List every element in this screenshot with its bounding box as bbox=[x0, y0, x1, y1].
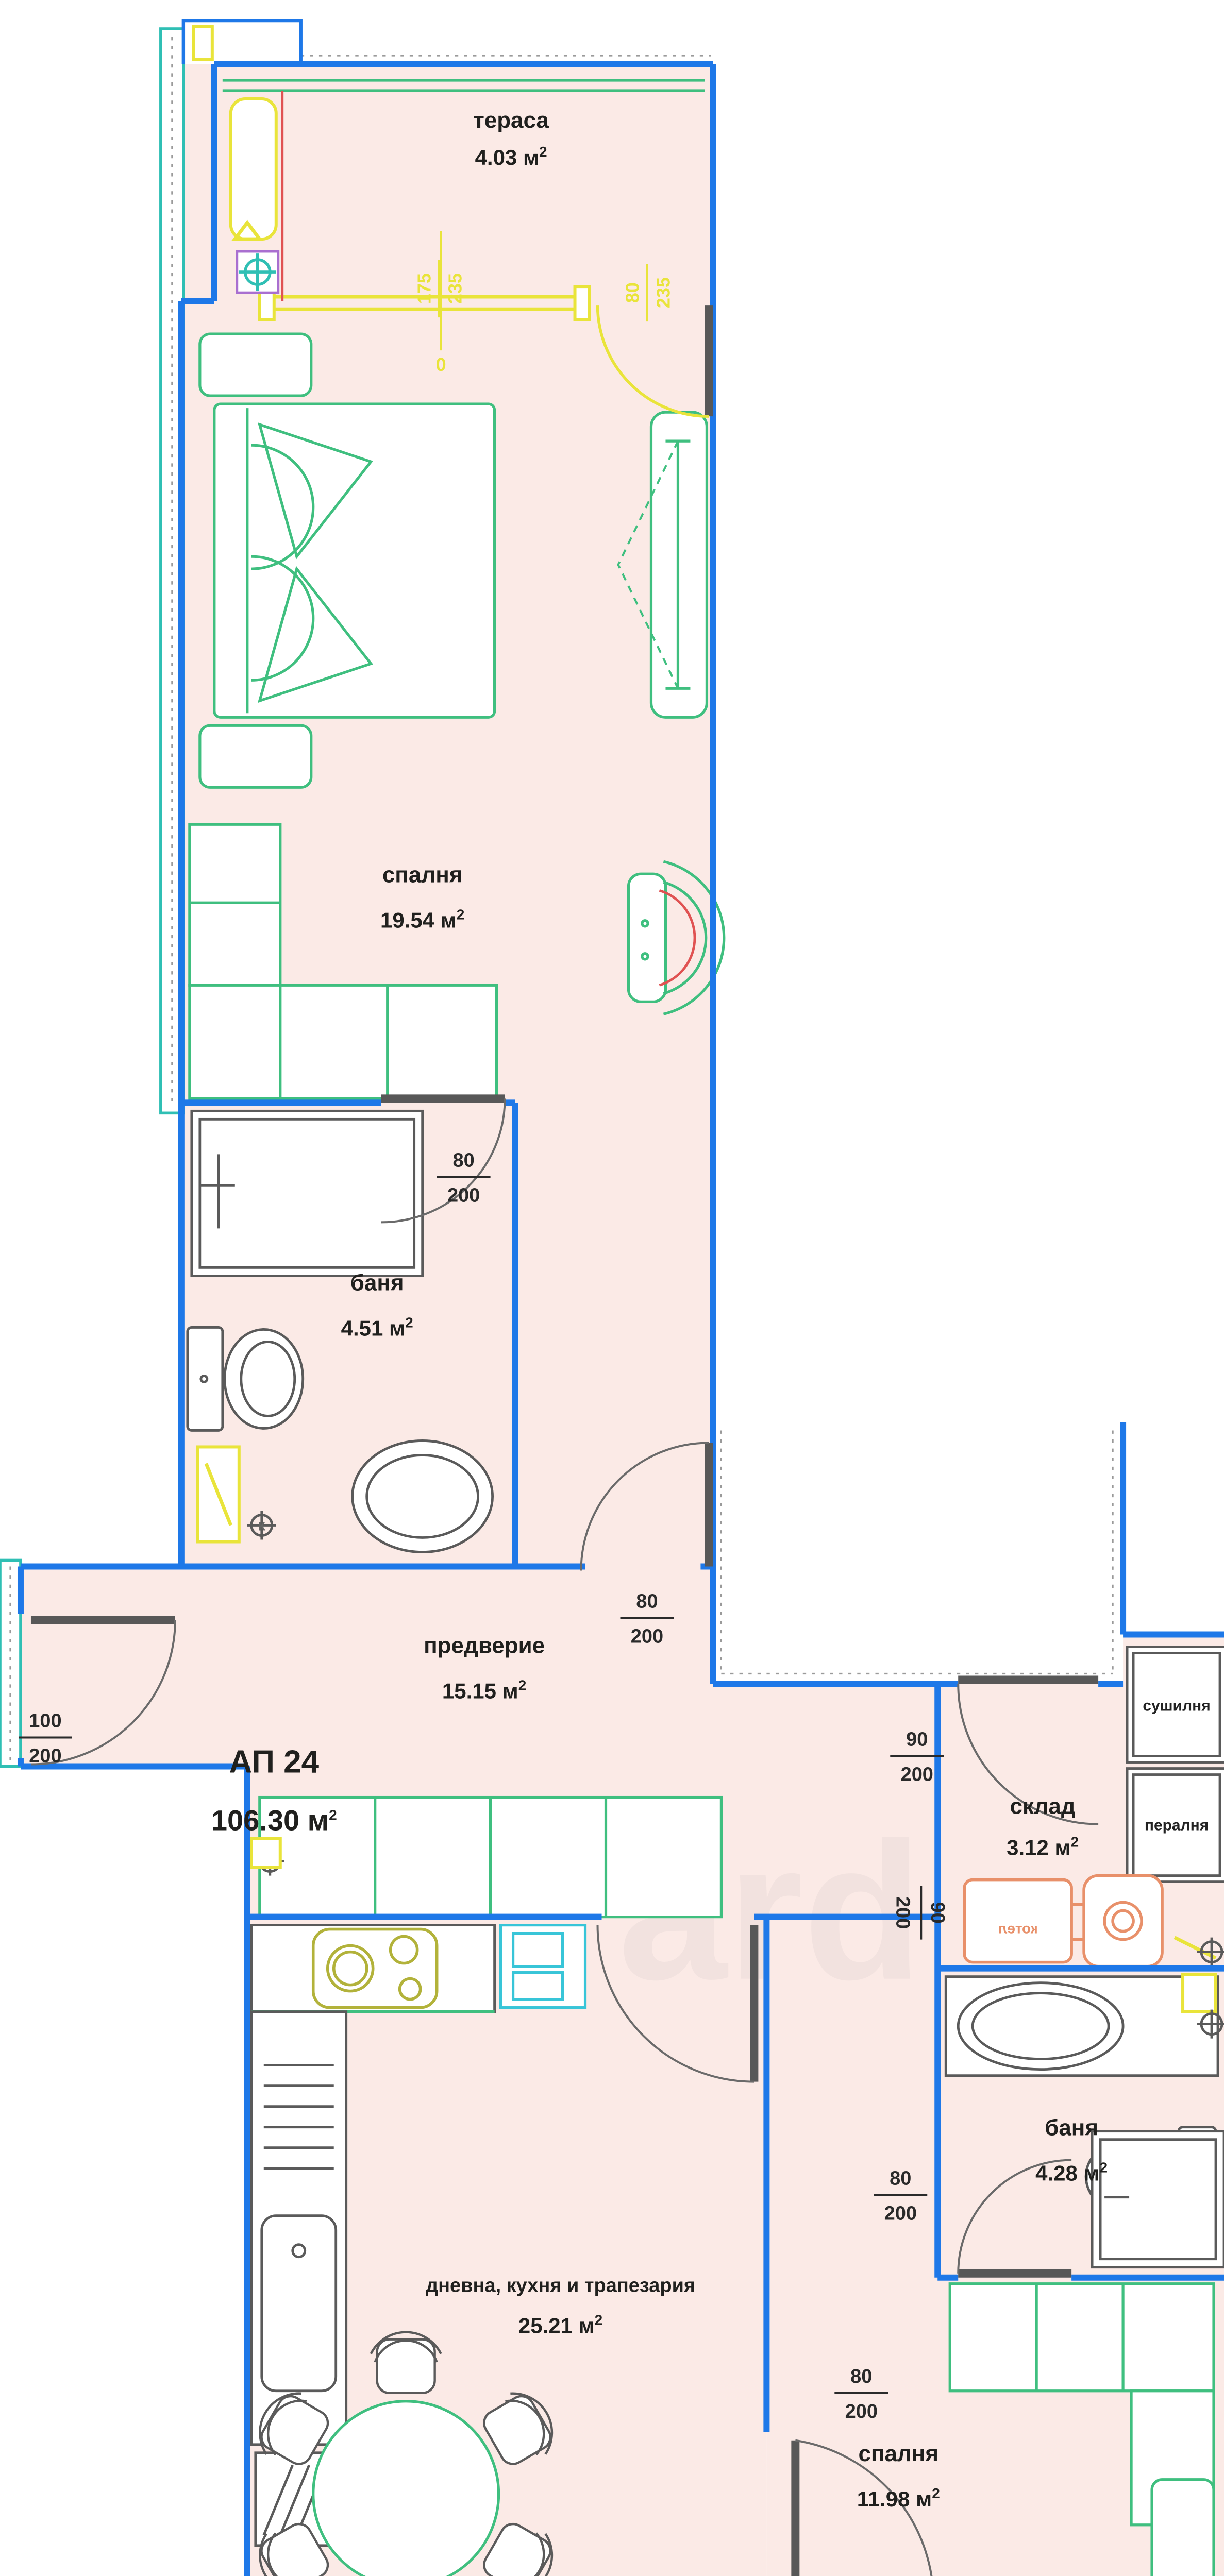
dim-w: 80 bbox=[890, 2168, 911, 2190]
dryer-label: сушилня bbox=[1143, 1698, 1210, 1715]
cabinet-row bbox=[190, 985, 497, 1098]
living-area: 25.21 м2 bbox=[518, 2312, 602, 2338]
neighbor-panel bbox=[194, 27, 212, 60]
machine-drum-inner bbox=[1113, 1911, 1133, 1931]
living-name: дневна, кухня и трапезария bbox=[426, 2275, 695, 2297]
fridge-shelf-2 bbox=[513, 1973, 563, 1999]
window-post bbox=[575, 286, 590, 319]
bath1-name: баня bbox=[350, 1270, 404, 1295]
bedroom1-name: спалня bbox=[382, 862, 463, 887]
dim-h: 200 bbox=[29, 1745, 61, 1767]
corridor-floor bbox=[515, 1103, 713, 1566]
terrace1-area: 4.03 м2 bbox=[475, 144, 547, 170]
nightstand-1 bbox=[200, 334, 311, 396]
sink-bowl bbox=[262, 2216, 336, 2391]
boiler-machine bbox=[1071, 1876, 1162, 1967]
nightstand-2 bbox=[200, 725, 311, 787]
dim-h: 200 bbox=[845, 2401, 878, 2422]
dim-h: 200 bbox=[631, 1626, 663, 1648]
dim-h: 200 bbox=[901, 1764, 933, 1786]
k-letter-bath1: К bbox=[258, 1519, 265, 1533]
armchair-back bbox=[628, 874, 665, 1002]
burner-large-inner bbox=[334, 1952, 367, 1985]
floor-plan-svg: ard bbox=[0, 0, 1224, 2576]
dim-h: 235 bbox=[652, 277, 674, 308]
dim-w: 100 bbox=[29, 1710, 61, 1732]
burner-small-1 bbox=[391, 1937, 417, 1963]
shower2-cabin bbox=[1092, 2131, 1224, 2267]
bath2-name: баня bbox=[1045, 2115, 1098, 2141]
dim-h: 200 bbox=[892, 1896, 913, 1929]
burner-small-2 bbox=[400, 1979, 421, 1999]
bedroom2-name: спалня bbox=[858, 2441, 938, 2466]
dim-h: 200 bbox=[884, 2203, 917, 2225]
pipe-box-kitchen bbox=[251, 1839, 280, 1868]
dim-w: 80 bbox=[850, 2366, 872, 2387]
apartment-title: АП 24 bbox=[229, 1744, 319, 1780]
room-fills bbox=[21, 64, 1224, 2576]
wardrobe2-row bbox=[950, 2284, 1214, 2391]
bathtub-oval bbox=[353, 1440, 493, 1552]
dining-chair bbox=[371, 2332, 441, 2393]
toilet-bowl bbox=[225, 1329, 303, 1428]
floor-plan-canvas: ard bbox=[0, 0, 1224, 2576]
dining-table bbox=[313, 2401, 499, 2576]
cooktop bbox=[313, 1929, 437, 2008]
dim-w: 90 bbox=[927, 1902, 948, 1923]
common-area-edges bbox=[721, 1430, 1113, 1673]
nightstand2 bbox=[1152, 2480, 1214, 2576]
dim-w: 80 bbox=[622, 282, 643, 303]
hallway-name: предверие bbox=[424, 1633, 545, 1658]
washer-label: пералня bbox=[1145, 1817, 1209, 1834]
hallway-area: 15.15 м2 bbox=[442, 1677, 526, 1703]
terrace1-name: тераса bbox=[473, 108, 549, 133]
bedroom1-area: 19.54 м2 bbox=[380, 906, 464, 932]
dim-w: 175 bbox=[414, 273, 435, 304]
dim-w: 80 bbox=[636, 1590, 658, 1612]
storage-name: склад bbox=[1010, 1794, 1075, 1819]
dim-h: 200 bbox=[447, 1184, 480, 1206]
boiler-label-mirrored: котел bbox=[998, 1921, 1038, 1937]
shower-cabin bbox=[192, 1111, 423, 1276]
terrace1-panel bbox=[231, 99, 276, 239]
bedroom2-area: 11.98 м2 bbox=[857, 2485, 940, 2511]
bath2-area: 4.28 м2 bbox=[1035, 2160, 1108, 2185]
toilet-cistern bbox=[188, 1327, 223, 1430]
vanity-basin bbox=[958, 1983, 1123, 2070]
dim-w: 90 bbox=[906, 1729, 928, 1751]
apartment-area: 106.30 м2 bbox=[211, 1804, 337, 1837]
dim-h: 235 bbox=[445, 273, 466, 304]
pipe-box-bath2 bbox=[1183, 1975, 1216, 2012]
cabinet-column bbox=[190, 824, 280, 985]
fridge-shelf-1 bbox=[513, 1934, 563, 1967]
bath1-area: 4.51 м2 bbox=[341, 1314, 413, 1340]
dim-w: 80 bbox=[452, 1149, 474, 1171]
storage-area: 3.12 м2 bbox=[1007, 1834, 1079, 1860]
sill-terrace1: 0 bbox=[436, 354, 446, 375]
